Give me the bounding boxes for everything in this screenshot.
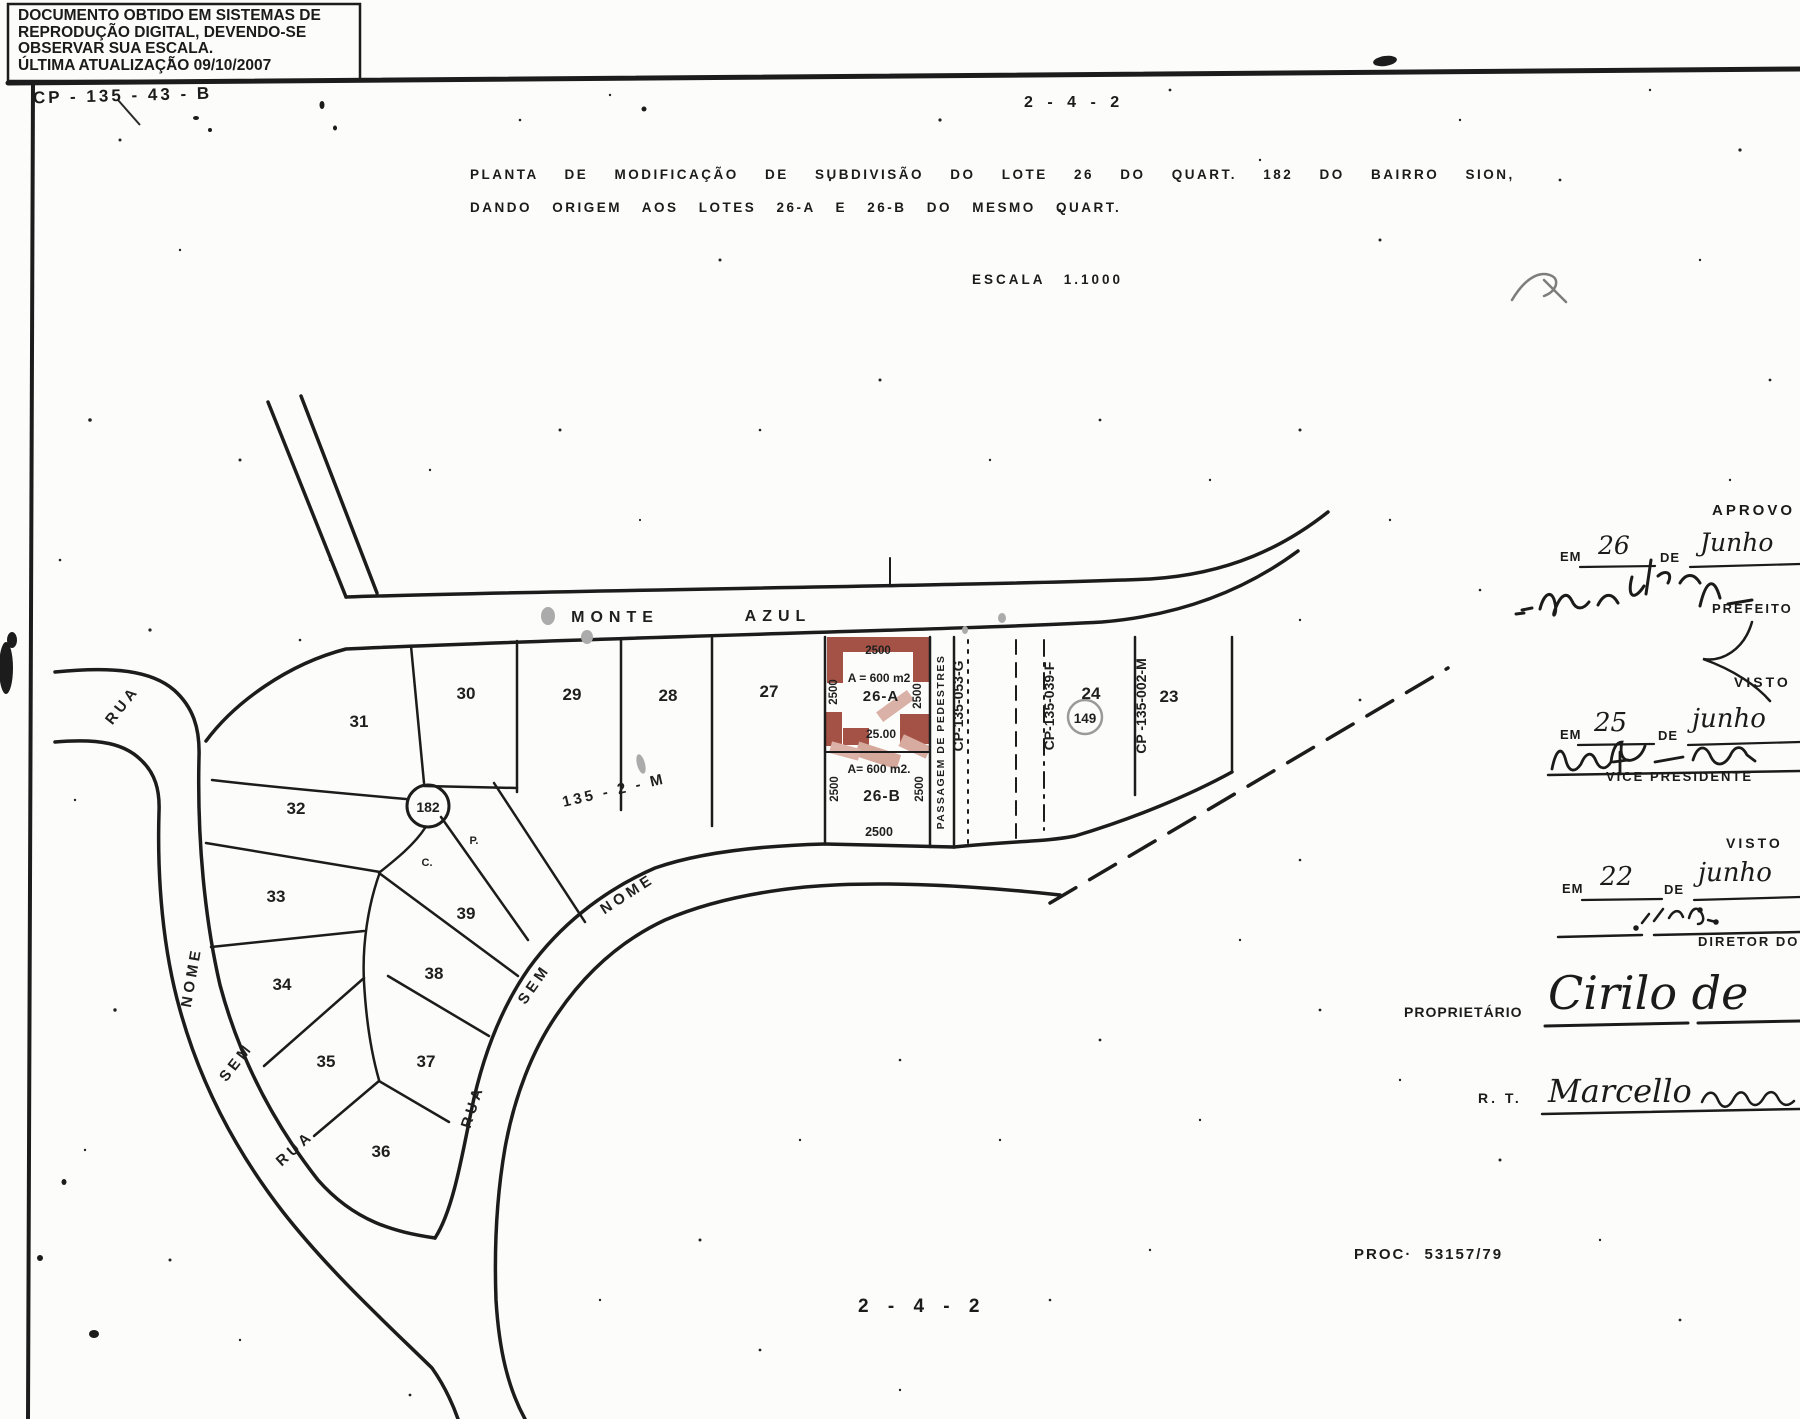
signature-prefeito: [1516, 560, 1770, 701]
lot-label-24: 24: [1082, 684, 1101, 703]
pencil-mark: [1512, 274, 1566, 302]
visto2-day: 22: [1600, 862, 1633, 892]
aprovo-day: 26: [1598, 531, 1630, 560]
rt-label: R. T.: [1478, 1090, 1522, 1106]
lot-26a-area: A = 600 m2: [848, 671, 911, 685]
scan-notice-line2: REPRODUÇÃO DIGITAL, DEVENDO-SE: [18, 25, 321, 42]
sheet-code-top: 2 - 4 - 2: [1024, 94, 1124, 112]
visto1-label: VISTO: [1734, 674, 1791, 690]
street-label-rua-mid: RUA: [458, 1083, 488, 1131]
cp-135-053-label: CP-135-053-G: [950, 660, 966, 751]
rt-name: Marcello: [1548, 1072, 1692, 1110]
block-code-label: 135 - 2 - M: [561, 770, 668, 810]
scale-label: ESCALA 1.1000: [972, 272, 1123, 287]
visto1-de-label: DE: [1658, 728, 1678, 743]
cp-135-002-label: CP -135-002-M: [1133, 658, 1149, 753]
lot-26b-dim-bottom: 2500: [865, 825, 893, 839]
aprovo-month: Junho: [1700, 528, 1773, 557]
visto2-label: VISTO: [1726, 835, 1783, 851]
signature-rt-continuation: [1702, 1092, 1794, 1107]
lot-26b-area: A= 600 m2.: [847, 762, 910, 776]
lot-label-27: 27: [760, 682, 779, 701]
lot-26b-label: 26-B: [863, 788, 901, 805]
lot-label-38: 38: [425, 964, 444, 983]
cp-135-039-label: CP-135-039-F: [1041, 661, 1057, 750]
diretor-label: DIRETOR DO: [1698, 934, 1799, 949]
street-label-rua-left: RUA: [273, 1127, 317, 1169]
lot-label-23: 23: [1160, 687, 1179, 706]
scan-notice-line4: ÚLTIMA ATUALIZAÇÃO 09/10/2007: [18, 58, 321, 75]
lot-label-30: 30: [457, 684, 476, 703]
lot-label-39: 39: [457, 904, 476, 923]
visto2-month: junho: [1698, 858, 1772, 888]
lot-label-35: 35: [317, 1052, 336, 1071]
visto1-em-label: EM: [1560, 727, 1582, 742]
lot-26b-dim-right: 2500: [914, 776, 926, 802]
visto1-day: 25: [1594, 708, 1627, 738]
process-number: PROC· 53157/79: [1354, 1246, 1503, 1263]
lot-26a-dim-bottom: 25.00: [866, 727, 896, 741]
visto2-em-label: EM: [1562, 881, 1584, 896]
aprovo-em-label: EM: [1560, 549, 1582, 564]
scan-notice: DOCUMENTO OBTIDO EM SISTEMAS DE REPRODUÇ…: [18, 8, 321, 74]
lot-26a-dim-top: 2500: [865, 645, 891, 657]
sheet-code-bottom: 2 - 4 - 2: [858, 1296, 986, 1318]
quart-182-label: 182: [416, 799, 440, 815]
street-label-nome-left: NOME: [178, 946, 205, 1009]
lot-label-32: 32: [287, 799, 306, 818]
point-p-label: P.: [470, 835, 479, 847]
proprietario-label: PROPRIETÁRIO: [1404, 1004, 1523, 1020]
street-label-monte: MONTE: [571, 609, 659, 626]
passage-label: PASSAGEM DE PEDESTRES: [935, 655, 947, 830]
title-line2: DANDO ORIGEM AOS LOTES 26-A E 26-B DO ME…: [470, 200, 1121, 215]
lot-26a-dim-left: 2500: [828, 679, 840, 705]
aprovo-de-label: DE: [1660, 550, 1680, 565]
street-label-sem-left: SEM: [216, 1039, 257, 1085]
lot-label-37: 37: [417, 1052, 436, 1071]
point-c-label: C.: [422, 857, 433, 869]
signature-diretor: [1635, 909, 1718, 930]
lot-26a-label: 26-A: [863, 688, 900, 705]
street-lines: [55, 396, 1448, 1419]
lot-label-33: 33: [267, 887, 286, 906]
street-label-azul: AZUL: [745, 608, 812, 625]
street-label-rua-entry: RUA: [102, 682, 143, 728]
scan-notice-line1: DOCUMENTO OBTIDO EM SISTEMAS DE: [18, 8, 321, 25]
street-label-sem-mid: SEM: [515, 961, 554, 1007]
scan-notice-line3: OBSERVAR SUA ESCALA.: [18, 41, 321, 58]
lot-label-28: 28: [659, 686, 678, 705]
vice-presidente-label: VICE PRESIDENTE: [1606, 769, 1753, 784]
lot-26b-dim-left: 2500: [829, 776, 841, 802]
lot-label-34: 34: [273, 975, 292, 994]
visto2-de-label: DE: [1664, 882, 1684, 897]
lot-label-29: 29: [563, 685, 582, 704]
aprovo-label: APROVO: [1712, 502, 1795, 519]
lot-26a-dim-right: 2500: [912, 683, 924, 709]
lot-boundaries: [206, 558, 1232, 1136]
prefeito-label: PREFEITO: [1712, 601, 1793, 616]
title-line1: PLANTA DE MODIFICAÇÃO DE SUBDIVISÃO DO L…: [470, 167, 1515, 182]
lot-label-31: 31: [350, 712, 369, 731]
proprietario-name: Cirilo de: [1548, 966, 1748, 1020]
quart-149-label: 149: [1074, 711, 1097, 726]
scanned-plat-document: MONTE AZUL RUA NOME SEM RUA NOME SEM RUA…: [0, 0, 1800, 1419]
visto1-month: junho: [1692, 704, 1766, 734]
lot-label-36: 36: [372, 1142, 391, 1161]
scan-blobs: [0, 54, 1398, 1338]
